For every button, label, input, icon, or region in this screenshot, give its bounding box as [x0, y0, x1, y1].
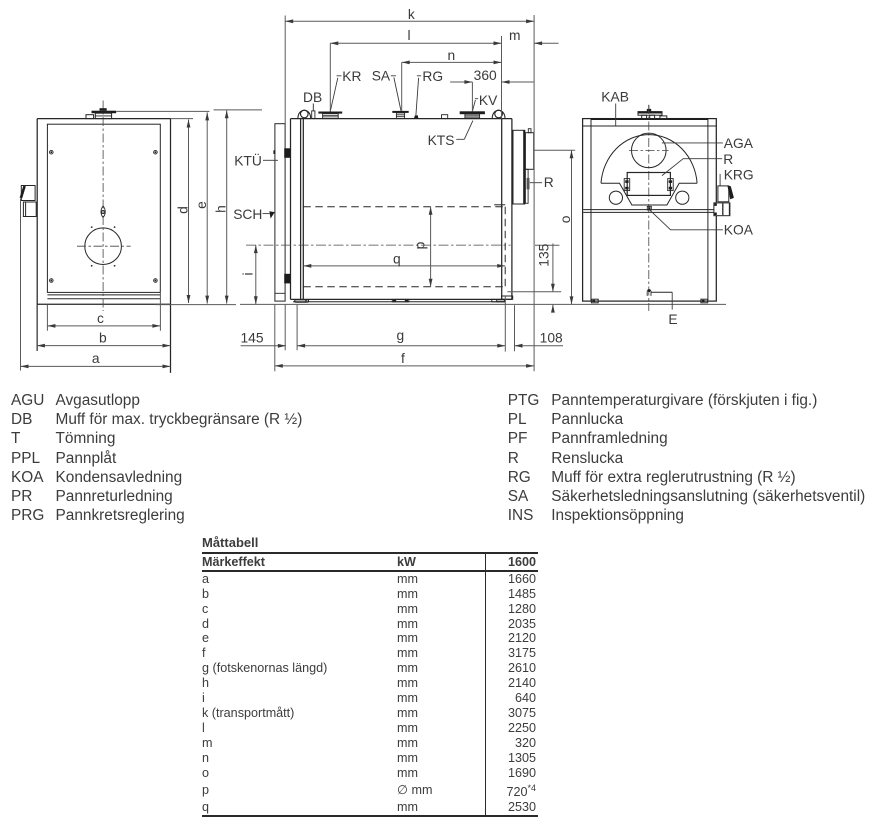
- svg-text:e: e: [194, 201, 209, 209]
- svg-text:h: h: [213, 205, 228, 213]
- svg-text:KV: KV: [479, 93, 498, 108]
- svg-text:KOA: KOA: [724, 222, 754, 237]
- svg-text:a: a: [92, 351, 100, 366]
- svg-text:KR: KR: [342, 69, 361, 84]
- svg-text:c: c: [97, 311, 104, 326]
- svg-text:k: k: [408, 7, 415, 22]
- svg-text:108: 108: [540, 330, 563, 345]
- svg-text:o: o: [558, 215, 573, 223]
- svg-text:m: m: [509, 28, 521, 43]
- svg-text:b: b: [99, 331, 107, 346]
- svg-text:E: E: [668, 312, 677, 327]
- svg-text:i: i: [241, 272, 256, 275]
- svg-text:KAB: KAB: [601, 89, 629, 104]
- svg-text:DB: DB: [303, 90, 322, 105]
- svg-text:KRG: KRG: [724, 168, 754, 183]
- svg-text:135: 135: [536, 243, 551, 266]
- svg-text:l: l: [407, 28, 410, 43]
- svg-text:R: R: [544, 175, 554, 190]
- svg-text:n: n: [447, 48, 455, 63]
- svg-text:KTS: KTS: [428, 133, 455, 148]
- svg-text:RG: RG: [422, 69, 443, 84]
- svg-text:d: d: [176, 206, 191, 214]
- svg-text:p: p: [413, 241, 428, 249]
- svg-text:AGA: AGA: [724, 136, 754, 151]
- svg-text:R: R: [723, 152, 733, 167]
- svg-text:SCH: SCH: [233, 207, 262, 222]
- svg-text:g: g: [396, 328, 404, 343]
- svg-text:145: 145: [240, 330, 263, 345]
- svg-text:360: 360: [474, 68, 497, 83]
- svg-text:q: q: [393, 251, 401, 266]
- svg-text:f: f: [401, 351, 405, 366]
- svg-text:SA: SA: [372, 68, 391, 83]
- svg-text:KTÜ: KTÜ: [234, 152, 262, 169]
